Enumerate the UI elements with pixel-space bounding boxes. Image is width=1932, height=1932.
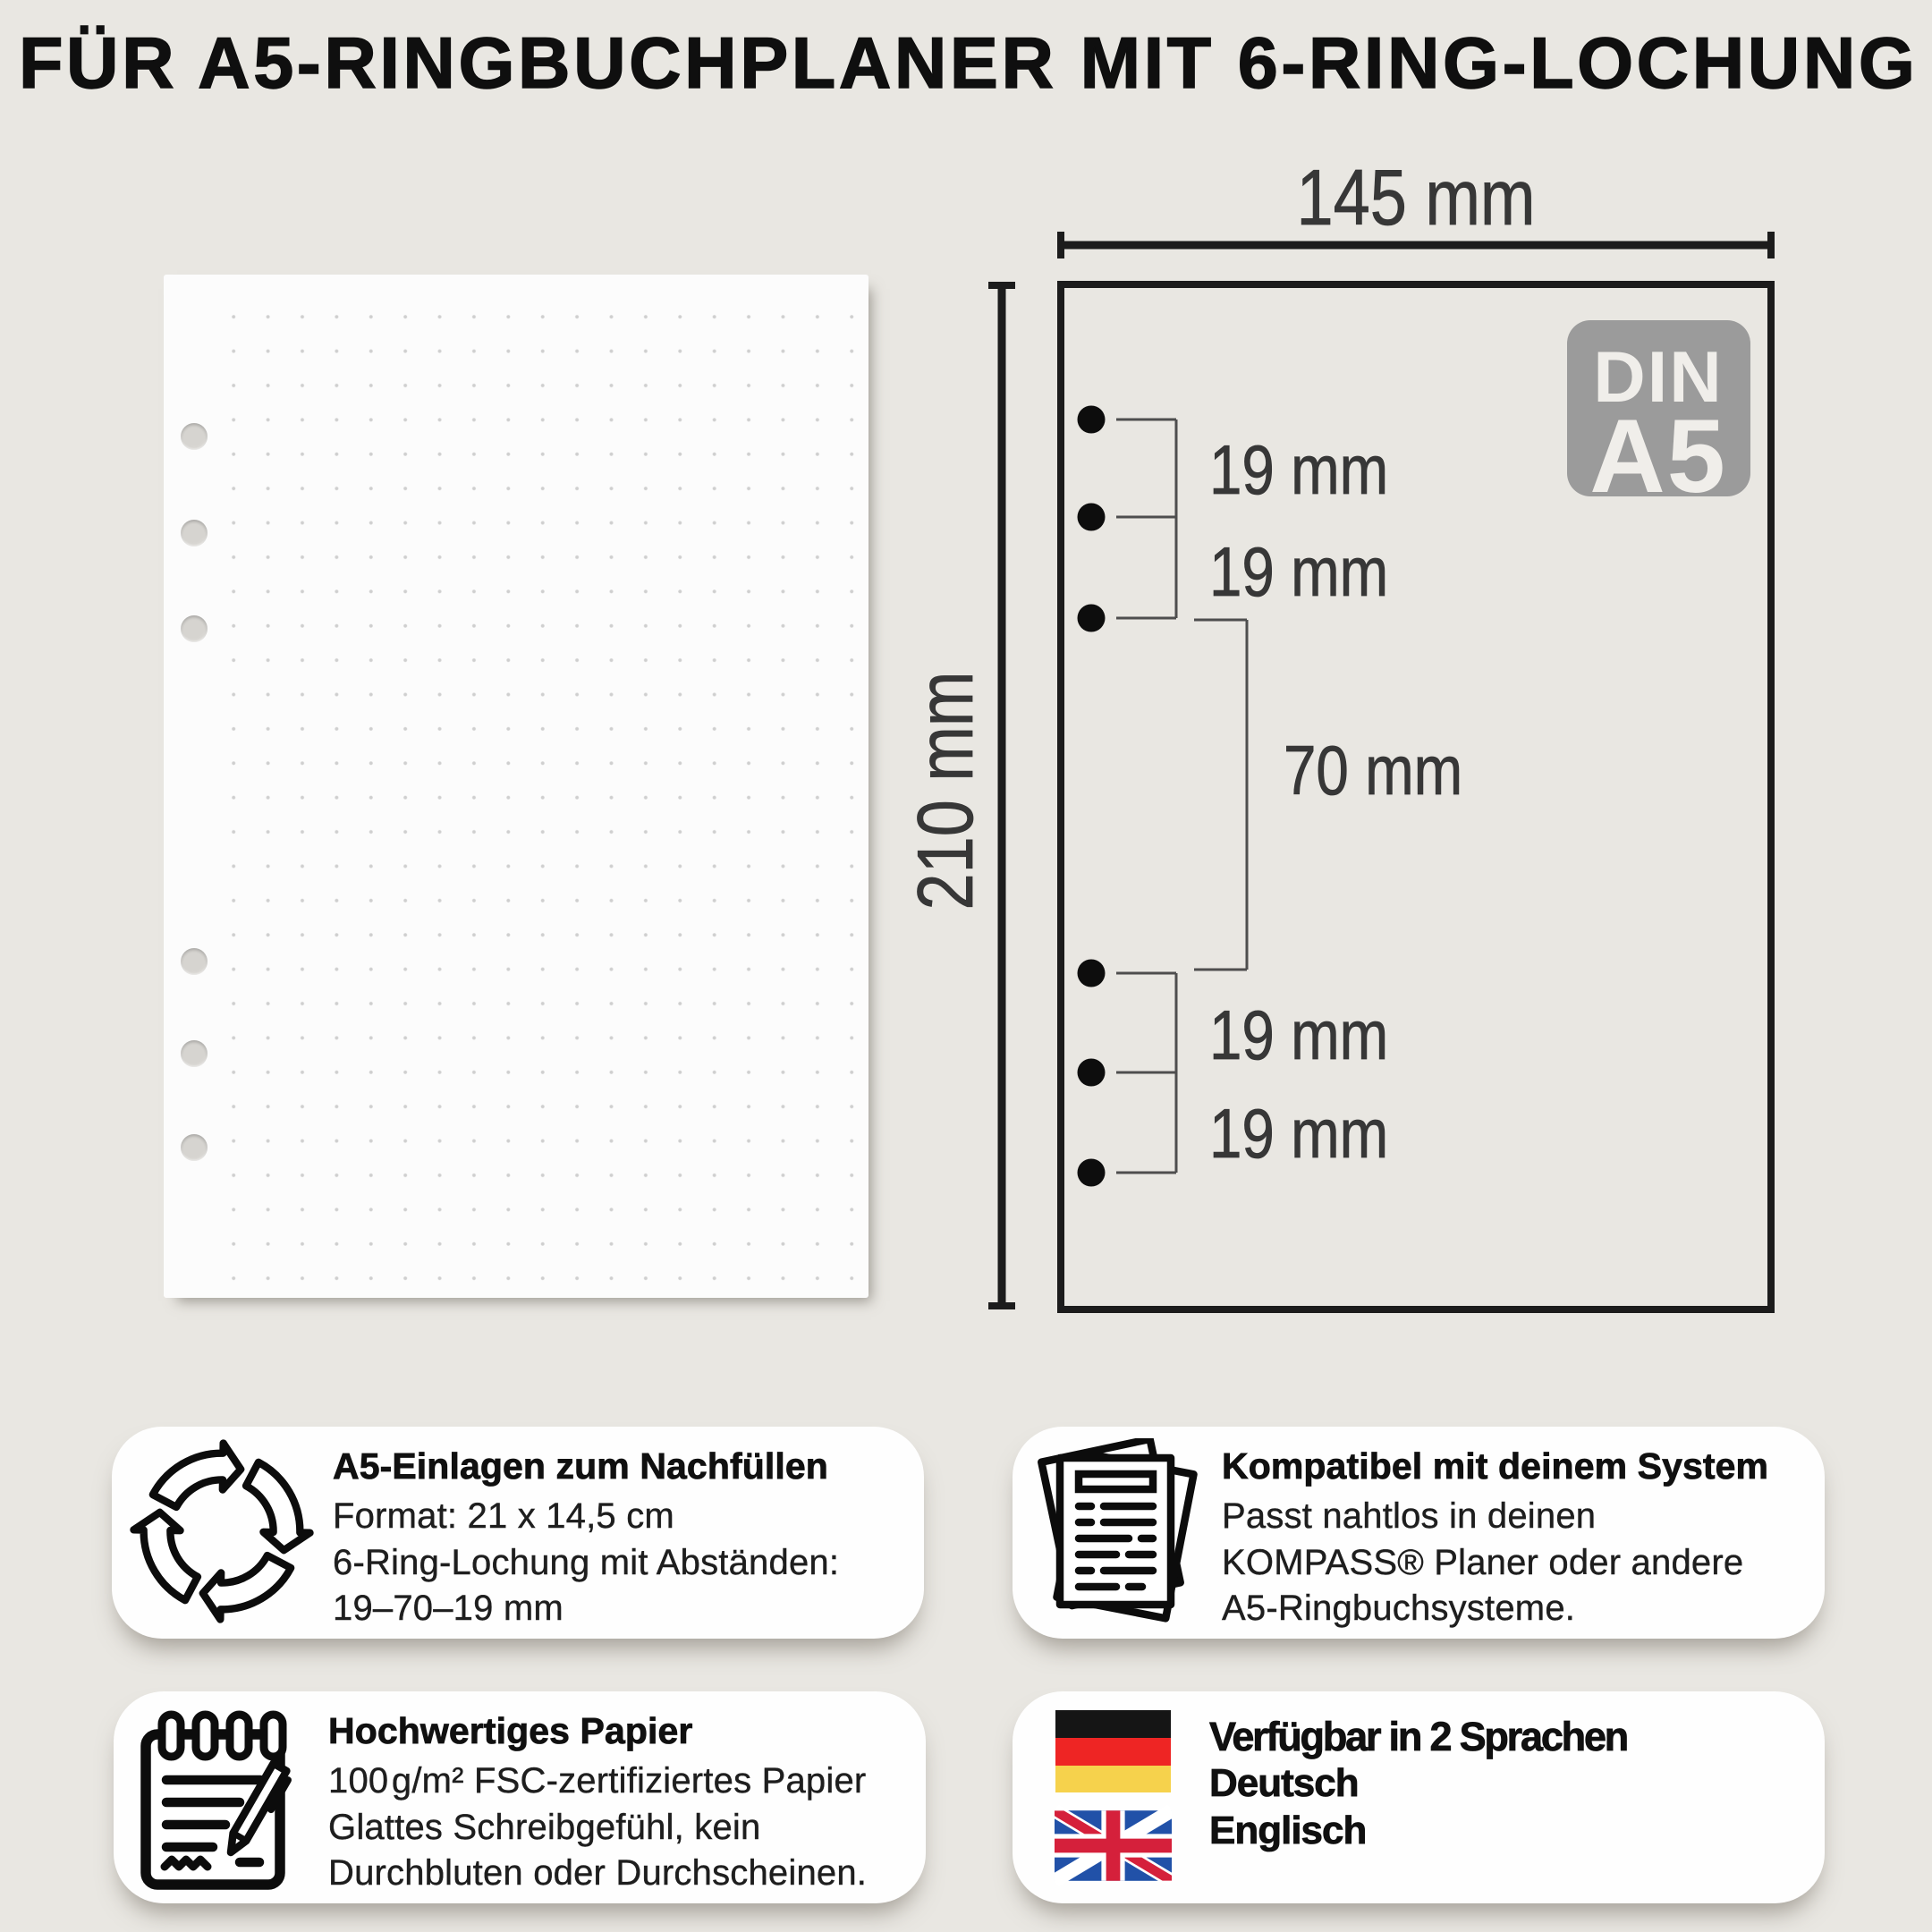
svg-text:210 mm: 210 mm [902, 672, 990, 911]
svg-text:19 mm: 19 mm [1209, 997, 1388, 1075]
svg-text:19 mm: 19 mm [1209, 1096, 1388, 1174]
svg-text:19 mm: 19 mm [1209, 534, 1388, 612]
svg-text:145 mm: 145 mm [1297, 154, 1536, 242]
svg-text:70 mm: 70 mm [1284, 733, 1462, 810]
svg-text:19 mm: 19 mm [1209, 432, 1388, 510]
svg-text:A5: A5 [1589, 397, 1727, 514]
